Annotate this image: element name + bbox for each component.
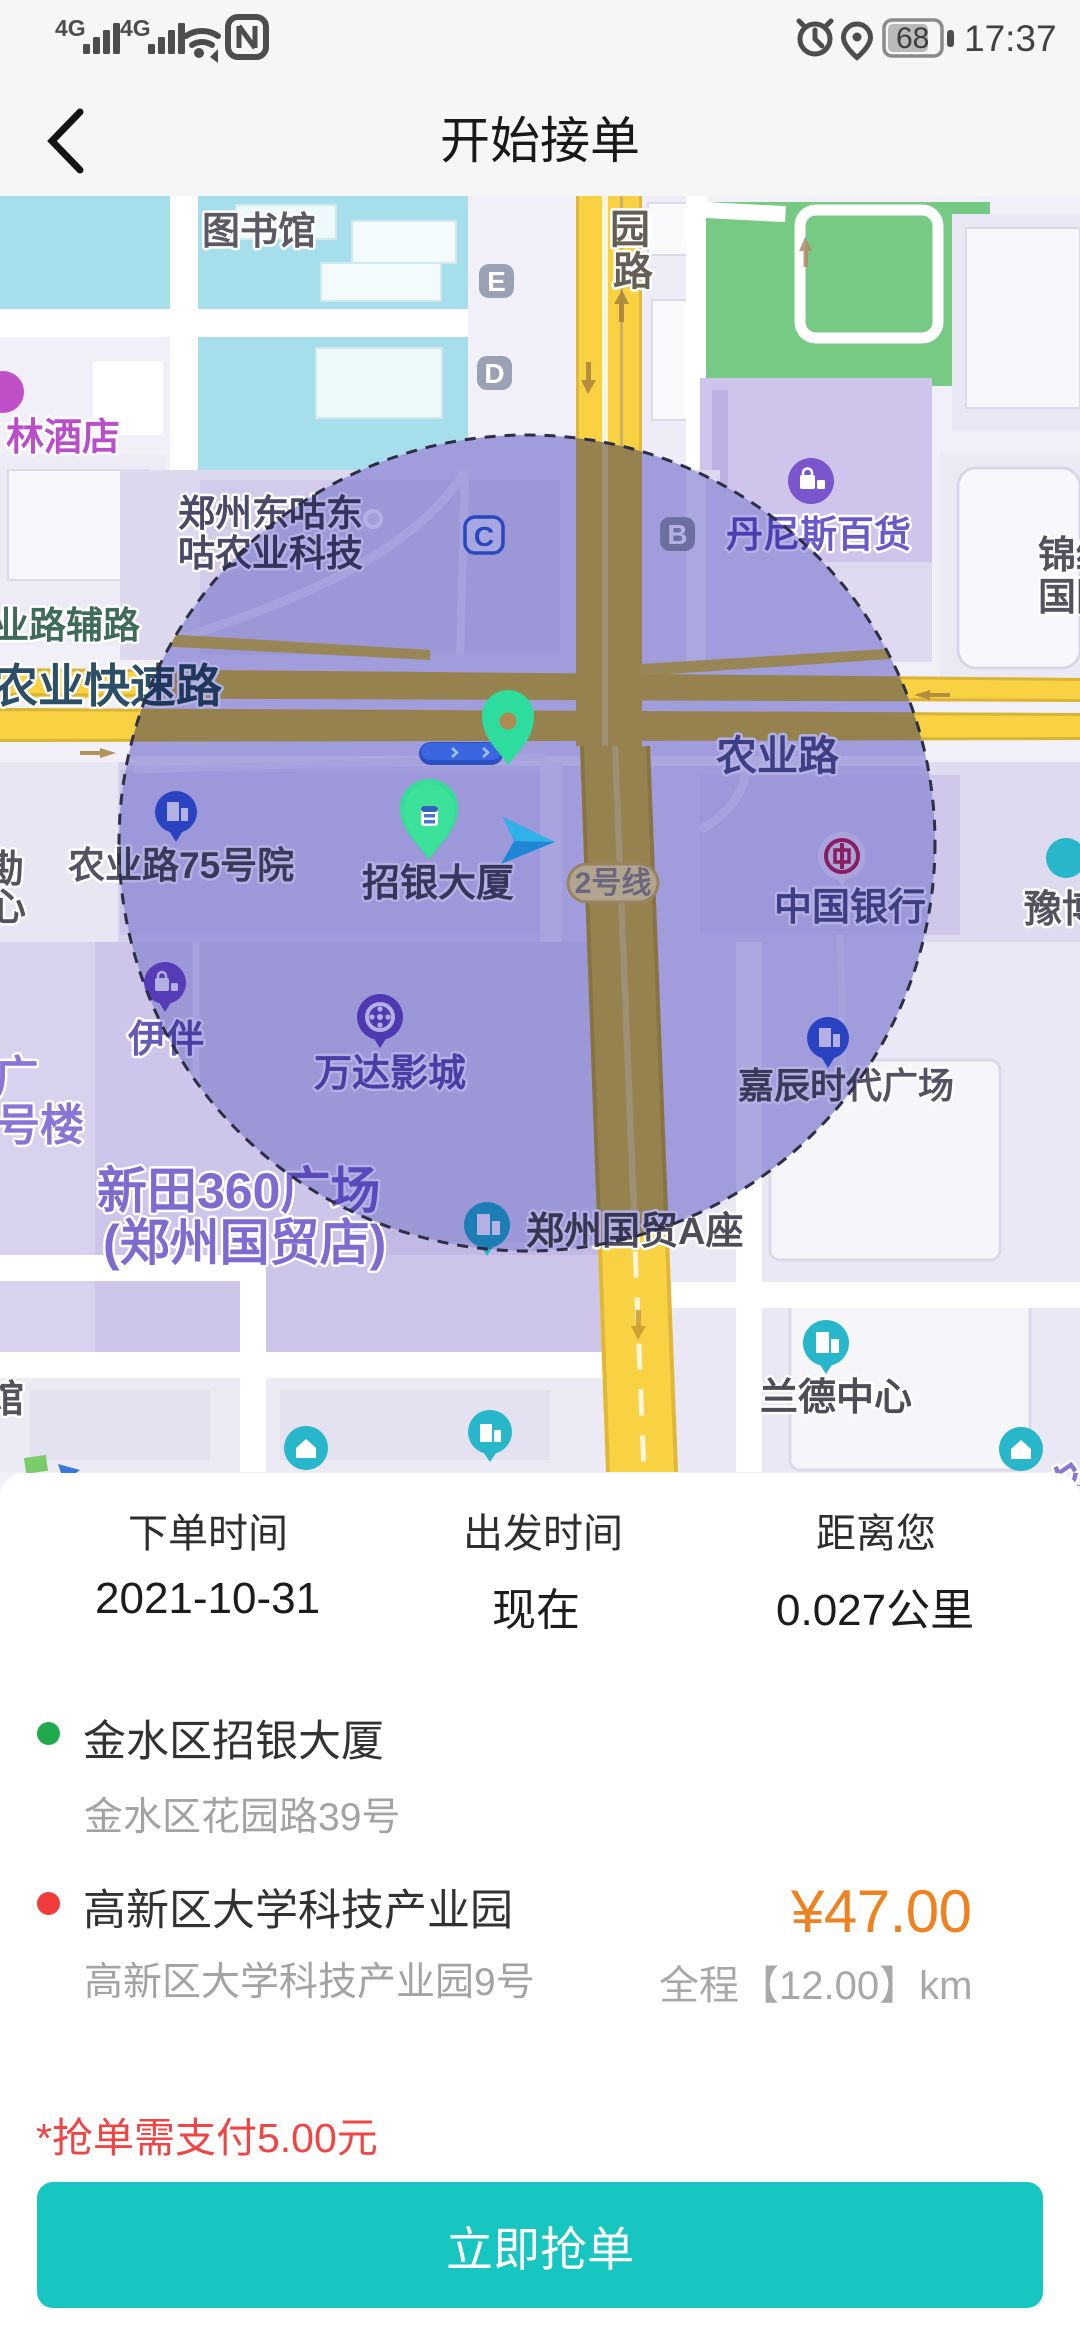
svg-text:E: E [487, 266, 506, 297]
svg-text:国际: 国际 [1038, 577, 1080, 619]
svg-text:勘: 勘 [0, 849, 24, 891]
svg-text:4G: 4G [55, 15, 86, 41]
svg-text:林酒店: 林酒店 [6, 417, 120, 459]
svg-text:业路辅路: 业路辅路 [0, 605, 141, 646]
svg-text:园: 园 [610, 208, 650, 252]
svg-text:豫博: 豫博 [1024, 889, 1080, 931]
svg-text:锦绣: 锦绣 [1038, 535, 1080, 577]
svg-text:(郑州国贸店): (郑州国贸店) [103, 1215, 386, 1271]
svg-text:17:37: 17:37 [964, 18, 1057, 59]
svg-text:4G: 4G [120, 15, 151, 41]
svg-text:0广: 0广 [0, 1053, 38, 1102]
svg-text:兰德中心: 兰德中心 [760, 1377, 912, 1419]
svg-text:馆: 馆 [0, 1379, 24, 1421]
svg-text:号楼: 号楼 [0, 1101, 84, 1150]
svg-text:68: 68 [896, 22, 929, 55]
svg-text:开始接单: 开始接单 [440, 113, 640, 169]
svg-text:图书馆: 图书馆 [202, 211, 316, 253]
svg-text:路: 路 [613, 250, 654, 294]
svg-text:心: 心 [0, 887, 26, 929]
svg-text:D: D [484, 358, 504, 389]
